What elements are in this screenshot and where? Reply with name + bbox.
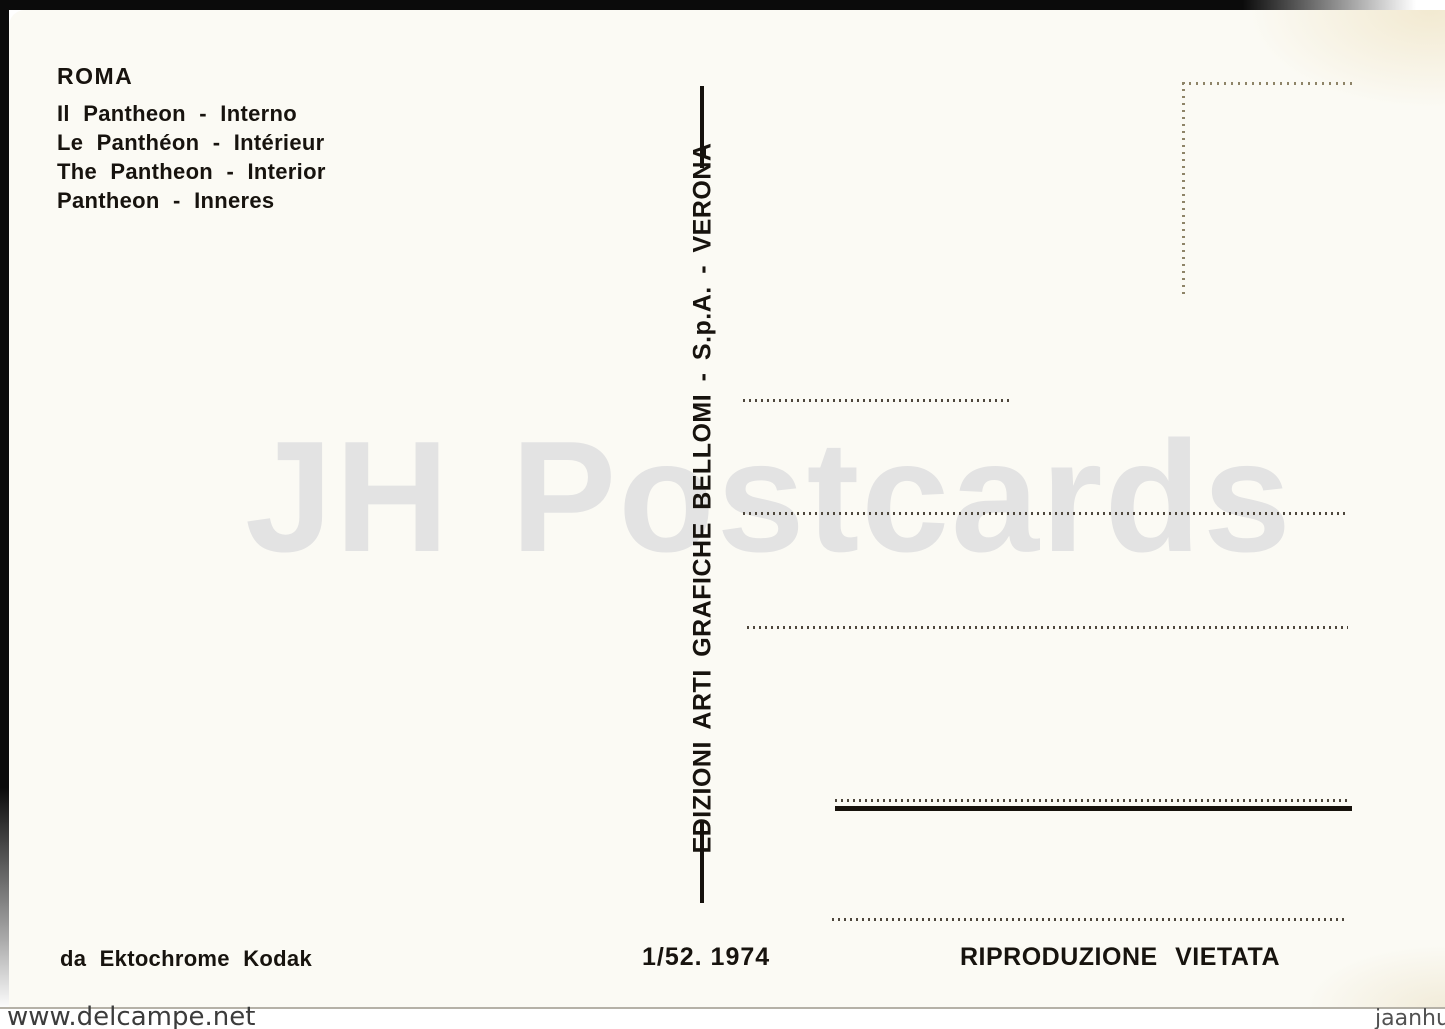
scan-edge-top (0, 0, 1445, 10)
delcampe-watermark: www.delcampe.net (7, 1004, 255, 1029)
postcard-scan: JH Postcards ROMA Il Pantheon - Interno … (0, 0, 1445, 1029)
stamp-box-left-edge (1182, 82, 1185, 298)
title-block: ROMA Il Pantheon - Interno Le Panthéon -… (57, 63, 326, 215)
stamp-box-top-edge (1182, 82, 1354, 85)
caption-italian: Il Pantheon - Interno (57, 99, 326, 128)
divider-line-bottom (700, 822, 704, 903)
series-number: 1/52. 1974 (642, 943, 770, 972)
address-line-4 (835, 799, 1348, 802)
jh-postcards-watermark: JH Postcards (245, 418, 1293, 576)
address-line-5 (832, 918, 1347, 921)
publisher-imprint: EDIZIONI ARTI GRAFICHE BELLOMI - S.p.A. … (689, 143, 718, 854)
address-line-solid (835, 806, 1352, 811)
caption-english: The Pantheon - Interior (57, 157, 326, 186)
city-title: ROMA (57, 63, 326, 90)
address-line-3 (747, 626, 1348, 629)
caption-french: Le Panthéon - Intérieur (57, 128, 326, 157)
address-line-1 (743, 399, 1009, 402)
caption-german: Pantheon - Inneres (57, 186, 326, 215)
reproduction-notice: RIPRODUZIONE VIETATA (960, 943, 1280, 972)
address-line-2 (743, 512, 1347, 515)
scan-edge-left (0, 0, 9, 1010)
film-credit: da Ektochrome Kodak (60, 946, 312, 972)
jaanhus-watermark: jaanhus (1375, 1008, 1445, 1029)
